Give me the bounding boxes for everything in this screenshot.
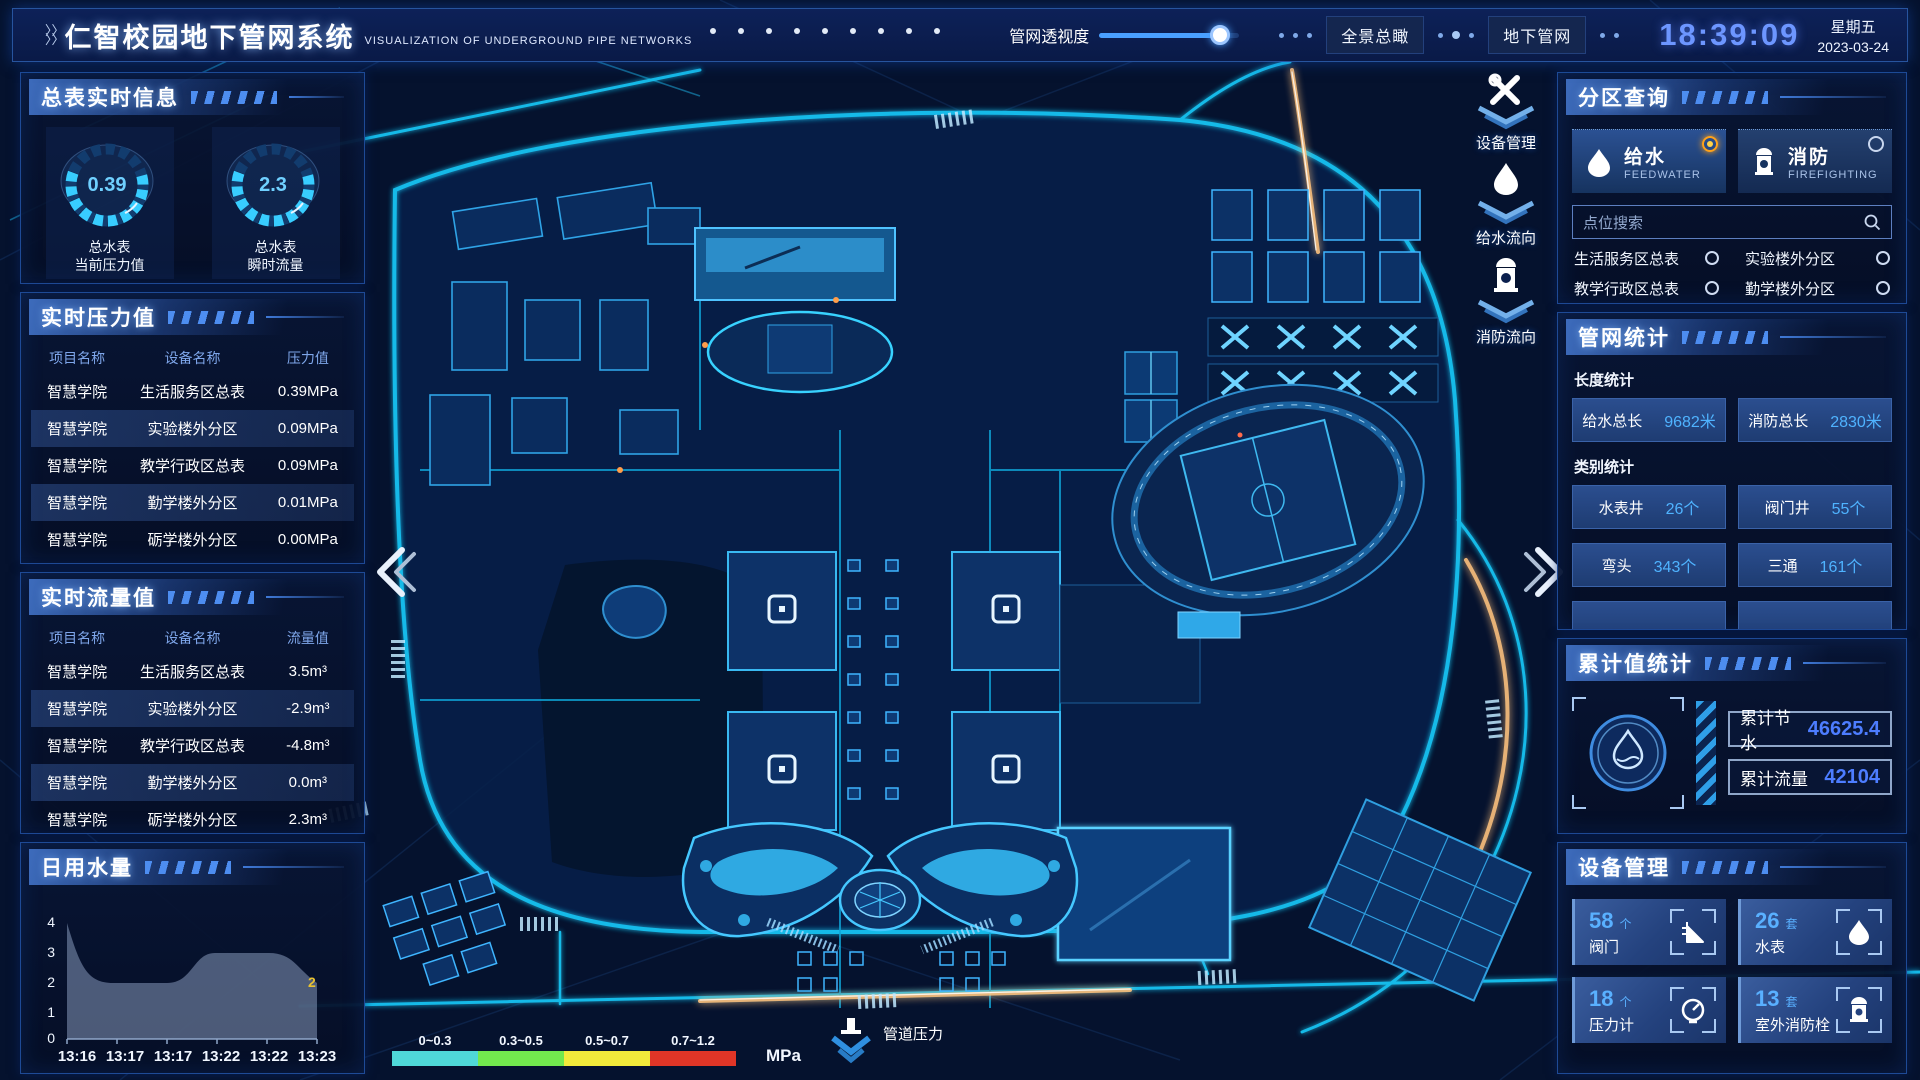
gauge-value: 2.3 — [259, 174, 287, 196]
device-card-pressure-gauge[interactable]: 18个 压力计 — [1572, 977, 1726, 1043]
stat-feedwater-length: 给水总长9682米 — [1572, 398, 1726, 442]
stat-elbow: 弯头343个 — [1572, 543, 1726, 587]
zone-item[interactable]: 教学行政区总表 — [1574, 273, 1719, 303]
stat-clipped — [1738, 601, 1892, 630]
panel-devices: 设备管理 58个 阀门 26套 水表 — [1557, 842, 1907, 1074]
x-tick: 13:23 — [298, 1048, 336, 1065]
panel-realtime-flow: 实时流量值 项目名称设备名称流量值 智慧学院生活服务区总表3.5m³ 智慧学院实… — [20, 572, 365, 834]
cumulative-saved-row: 累计节水 46625.4 — [1728, 711, 1892, 747]
table-row[interactable]: 智慧学院生活服务区总表3.5m³ — [31, 653, 354, 690]
header-left-decoration: 〉〉〉〉 — [45, 26, 65, 44]
x-tick: 13:22 — [202, 1048, 240, 1065]
header-dots-decoration — [710, 28, 940, 34]
firefighting-toggle[interactable]: 消防 FIREFIGHTING — [1738, 129, 1892, 193]
fire-hydrant-icon — [1836, 987, 1882, 1033]
chart-annotation: 2 — [308, 974, 316, 990]
pipe-transparency-label: 管网透视度 — [1009, 23, 1089, 47]
zone-item[interactable]: 生活服务区总表 — [1574, 243, 1719, 273]
panel-pipe-stats: 管网统计 长度统计 给水总长9682米 消防总长2830米 类别统计 水表井26… — [1557, 312, 1907, 630]
table-row[interactable]: 智慧学院实验楼外分区0.09MPa — [31, 410, 354, 447]
map-action-label: 设备管理 — [1476, 132, 1536, 153]
x-tick: 13:17 — [106, 1048, 144, 1065]
zone-item[interactable]: 砺学楼外分区 — [1574, 303, 1719, 304]
search-placeholder: 点位搜索 — [1583, 212, 1863, 233]
legend-swatch — [650, 1051, 736, 1066]
section-title: 总表实时信息 — [41, 82, 179, 112]
y-tick: 4 — [47, 914, 55, 930]
header-line-decoration — [1780, 336, 1886, 338]
table-row[interactable]: 智慧学院砺学楼外分区0.00MPa — [31, 521, 354, 558]
device-card-water-meter[interactable]: 26套 水表 — [1738, 899, 1892, 965]
zone-item[interactable]: 宿舍区泵房 — [1745, 303, 1890, 304]
point-search-input[interactable]: 点位搜索 — [1572, 205, 1892, 239]
panel-zone-query: 分区查询 给水 FEEDWATER 消防 FIREFIGHTING — [1557, 72, 1907, 304]
map-action-fire-flow[interactable]: 消防流向 — [1471, 254, 1541, 347]
gauge-pressure: 0.39 总水表 当前压力值 — [46, 127, 174, 279]
stat-valve-well: 阀门井55个 — [1738, 485, 1892, 529]
app-title: 仁智校园地下管网系统 — [65, 16, 355, 55]
daily-water-chart: 4 3 2 1 0 2 13:16 13:17 13:17 13:22 13:2… — [25, 891, 361, 1071]
cumulative-flow-row: 累计流量 42104 — [1728, 759, 1892, 795]
section-title: 分区查询 — [1578, 82, 1670, 112]
header-line-decoration — [266, 596, 344, 598]
x-tick: 13:16 — [58, 1048, 96, 1065]
legend-segment: 0.7~1.2 — [650, 1033, 736, 1066]
valve-icon — [1670, 909, 1716, 955]
slashes-decoration — [1682, 861, 1768, 874]
weekday: 星期五 — [1817, 16, 1889, 37]
table-row[interactable]: 智慧学院勤学楼外分区0.0m³ — [31, 764, 354, 801]
category-stats-label: 类别统计 — [1574, 456, 1906, 477]
radio-ring[interactable] — [1876, 251, 1890, 265]
y-tick: 2 — [47, 974, 55, 990]
panel-realtime-pressure: 实时压力值 项目名称设备名称压力值 智慧学院生活服务区总表0.39MPa 智慧学… — [20, 292, 365, 564]
zone-item[interactable]: 勤学楼外分区 — [1745, 273, 1890, 303]
cumulative-water-icon — [1572, 697, 1684, 809]
pipe-pressure-label: 管道压力 — [883, 1023, 943, 1044]
slashes-decoration — [191, 91, 277, 104]
radio-ring[interactable] — [1876, 281, 1890, 295]
legend-segment: 0.3~0.5 — [478, 1033, 564, 1066]
slashes-decoration — [1682, 91, 1768, 104]
table-row[interactable]: 智慧学院生活服务区总表0.39MPa — [31, 373, 354, 410]
section-title: 管网统计 — [1578, 322, 1670, 352]
flow-table: 项目名称设备名称流量值 智慧学院生活服务区总表3.5m³ 智慧学院实验楼外分区-… — [21, 615, 364, 834]
firefighting-label: 消防 — [1788, 142, 1878, 169]
radio-ring[interactable] — [1705, 281, 1719, 295]
panel-cumulative: 累计值统计 累计节水 46625.4 累计流量 42104 — [1557, 638, 1907, 834]
header-line-decoration — [1780, 866, 1886, 868]
length-stats-label: 长度统计 — [1574, 369, 1906, 390]
top-header: 〉〉〉〉 仁智校园地下管网系统 VISUALIZATION OF UNDERGR… — [12, 8, 1908, 62]
section-title: 设备管理 — [1578, 852, 1670, 882]
feedwater-toggle[interactable]: 给水 FEEDWATER — [1572, 129, 1726, 193]
fire-hydrant-icon — [1752, 146, 1776, 178]
x-tick: 13:17 — [154, 1048, 192, 1065]
section-header: 实时压力值 — [29, 299, 356, 335]
header-line-decoration — [289, 96, 344, 98]
map-action-device-management[interactable]: 设备管理 — [1471, 64, 1541, 153]
pipe-pressure-icon — [827, 1014, 875, 1066]
water-drop-icon — [1586, 147, 1612, 177]
map-action-label: 消防流向 — [1476, 326, 1536, 347]
feedwater-radio[interactable] — [1702, 136, 1718, 152]
clock: 18:39:09 — [1659, 17, 1799, 53]
section-header: 管网统计 — [1566, 319, 1898, 355]
header-line-decoration — [266, 316, 344, 318]
legend-unit: MPa — [766, 1046, 801, 1066]
table-row[interactable]: 智慧学院实验楼外分区-2.9m³ — [31, 690, 354, 727]
slashes-decoration — [1705, 657, 1791, 670]
search-icon[interactable] — [1863, 213, 1881, 231]
gauge-flow: 2.3 总水表 瞬时流量 — [212, 127, 340, 279]
y-tick: 0 — [47, 1030, 55, 1046]
x-tick: 13:22 — [250, 1048, 288, 1065]
slider-knob[interactable] — [1210, 25, 1230, 45]
table-row[interactable]: 智慧学院勤学楼外分区0.01MPa — [31, 484, 354, 521]
stat-tee: 三通161个 — [1738, 543, 1892, 587]
pressure-table: 项目名称设备名称压力值 智慧学院生活服务区总表0.39MPa 智慧学院实验楼外分… — [21, 335, 364, 558]
gauge-label-line1: 总水表 — [212, 238, 340, 256]
date: 2023-03-24 — [1817, 39, 1889, 55]
gauge-value: 0.39 — [87, 174, 126, 196]
table-row[interactable]: 智慧学院教学行政区总表-4.8m³ — [31, 727, 354, 764]
map-action-feedwater-flow[interactable]: 给水流向 — [1471, 159, 1541, 248]
firefighting-label-en: FIREFIGHTING — [1788, 169, 1878, 181]
stat-water-meter-well: 水表井26个 — [1572, 485, 1726, 529]
slashes-decoration — [1682, 331, 1768, 344]
section-header: 累计值统计 — [1566, 645, 1898, 681]
date-block: 星期五 2023-03-24 — [1817, 16, 1889, 55]
table-header-row: 项目名称设备名称流量值 — [31, 623, 354, 653]
separator-dots — [1438, 31, 1474, 39]
y-tick: 3 — [47, 944, 55, 960]
water-drop-icon — [1836, 909, 1882, 955]
section-title: 累计值统计 — [1578, 648, 1693, 678]
pressure-legend: 0~0.3 0.3~0.5 0.5~0.7 0.7~1.2 MPa 管道压力 — [392, 1014, 943, 1066]
gauge-dial: 0.39 — [46, 129, 168, 233]
section-header: 分区查询 — [1566, 79, 1898, 115]
stat-fire-length: 消防总长2830米 — [1738, 398, 1892, 442]
map-pan-left-arrow[interactable] — [374, 546, 418, 598]
firefighting-radio[interactable] — [1868, 136, 1884, 152]
slashes-decoration — [168, 591, 254, 604]
section-header: 日用水量 — [29, 849, 356, 885]
section-title: 实时流量值 — [41, 582, 156, 612]
radio-ring[interactable] — [1705, 251, 1719, 265]
section-title: 日用水量 — [41, 852, 133, 882]
pipe-transparency-slider[interactable] — [1099, 26, 1239, 44]
stat-clipped — [1572, 601, 1726, 630]
header-line-decoration — [1803, 662, 1886, 664]
gauge-dial: 2.3 — [212, 129, 334, 233]
stripes-decoration — [1696, 701, 1716, 805]
slashes-decoration — [168, 311, 254, 324]
y-tick: 1 — [47, 1004, 55, 1020]
table-row[interactable]: 智慧学院砺学楼外分区2.3m³ — [31, 801, 354, 834]
app-subtitle: VISUALIZATION OF UNDERGROUND PIPE NETWOR… — [365, 35, 693, 47]
section-header: 实时流量值 — [29, 579, 356, 615]
legend-segment: 0~0.3 — [392, 1033, 478, 1066]
pressure-gauge-icon — [1670, 987, 1716, 1033]
gauge-label-line1: 总水表 — [46, 238, 174, 256]
feedwater-label-en: FEEDWATER — [1624, 169, 1701, 181]
table-header-row: 项目名称设备名称压力值 — [31, 343, 354, 373]
map-action-label: 给水流向 — [1476, 227, 1536, 248]
separator-dots — [1600, 33, 1619, 38]
header-line-decoration — [1780, 96, 1886, 98]
legend-swatch — [478, 1051, 564, 1066]
overview-button[interactable]: 全景总瞰 — [1326, 16, 1424, 54]
header-line-decoration — [243, 866, 344, 868]
legend-segment: 0.5~0.7 — [564, 1033, 650, 1066]
device-card-hydrant[interactable]: 13套 室外消防栓 — [1738, 977, 1892, 1043]
panel-realtime-info: 总表实时信息 0.39 总水表 当前压力值 2.3 — [20, 72, 365, 284]
device-card-valve[interactable]: 58个 阀门 — [1572, 899, 1726, 965]
pipe-pressure-toggle[interactable]: 管道压力 — [827, 1014, 943, 1066]
slashes-decoration — [145, 861, 231, 874]
gauge-label-line2: 当前压力值 — [46, 256, 174, 274]
panel-daily-water: 日用水量 4 3 2 1 0 2 13:16 13:17 13:17 13:22 — [20, 842, 365, 1074]
section-header: 总表实时信息 — [29, 79, 356, 115]
zone-item[interactable]: 实验楼外分区 — [1745, 243, 1890, 273]
legend-swatch — [564, 1051, 650, 1066]
section-title: 实时压力值 — [41, 302, 156, 332]
underground-pipes-button[interactable]: 地下管网 — [1488, 16, 1586, 54]
section-header: 设备管理 — [1566, 849, 1898, 885]
separator-dots — [1279, 33, 1312, 38]
table-row[interactable]: 智慧学院教学行政区总表0.09MPa — [31, 447, 354, 484]
gauge-label-line2: 瞬时流量 — [212, 256, 340, 274]
feedwater-label: 给水 — [1624, 142, 1701, 169]
legend-swatch — [392, 1051, 478, 1066]
